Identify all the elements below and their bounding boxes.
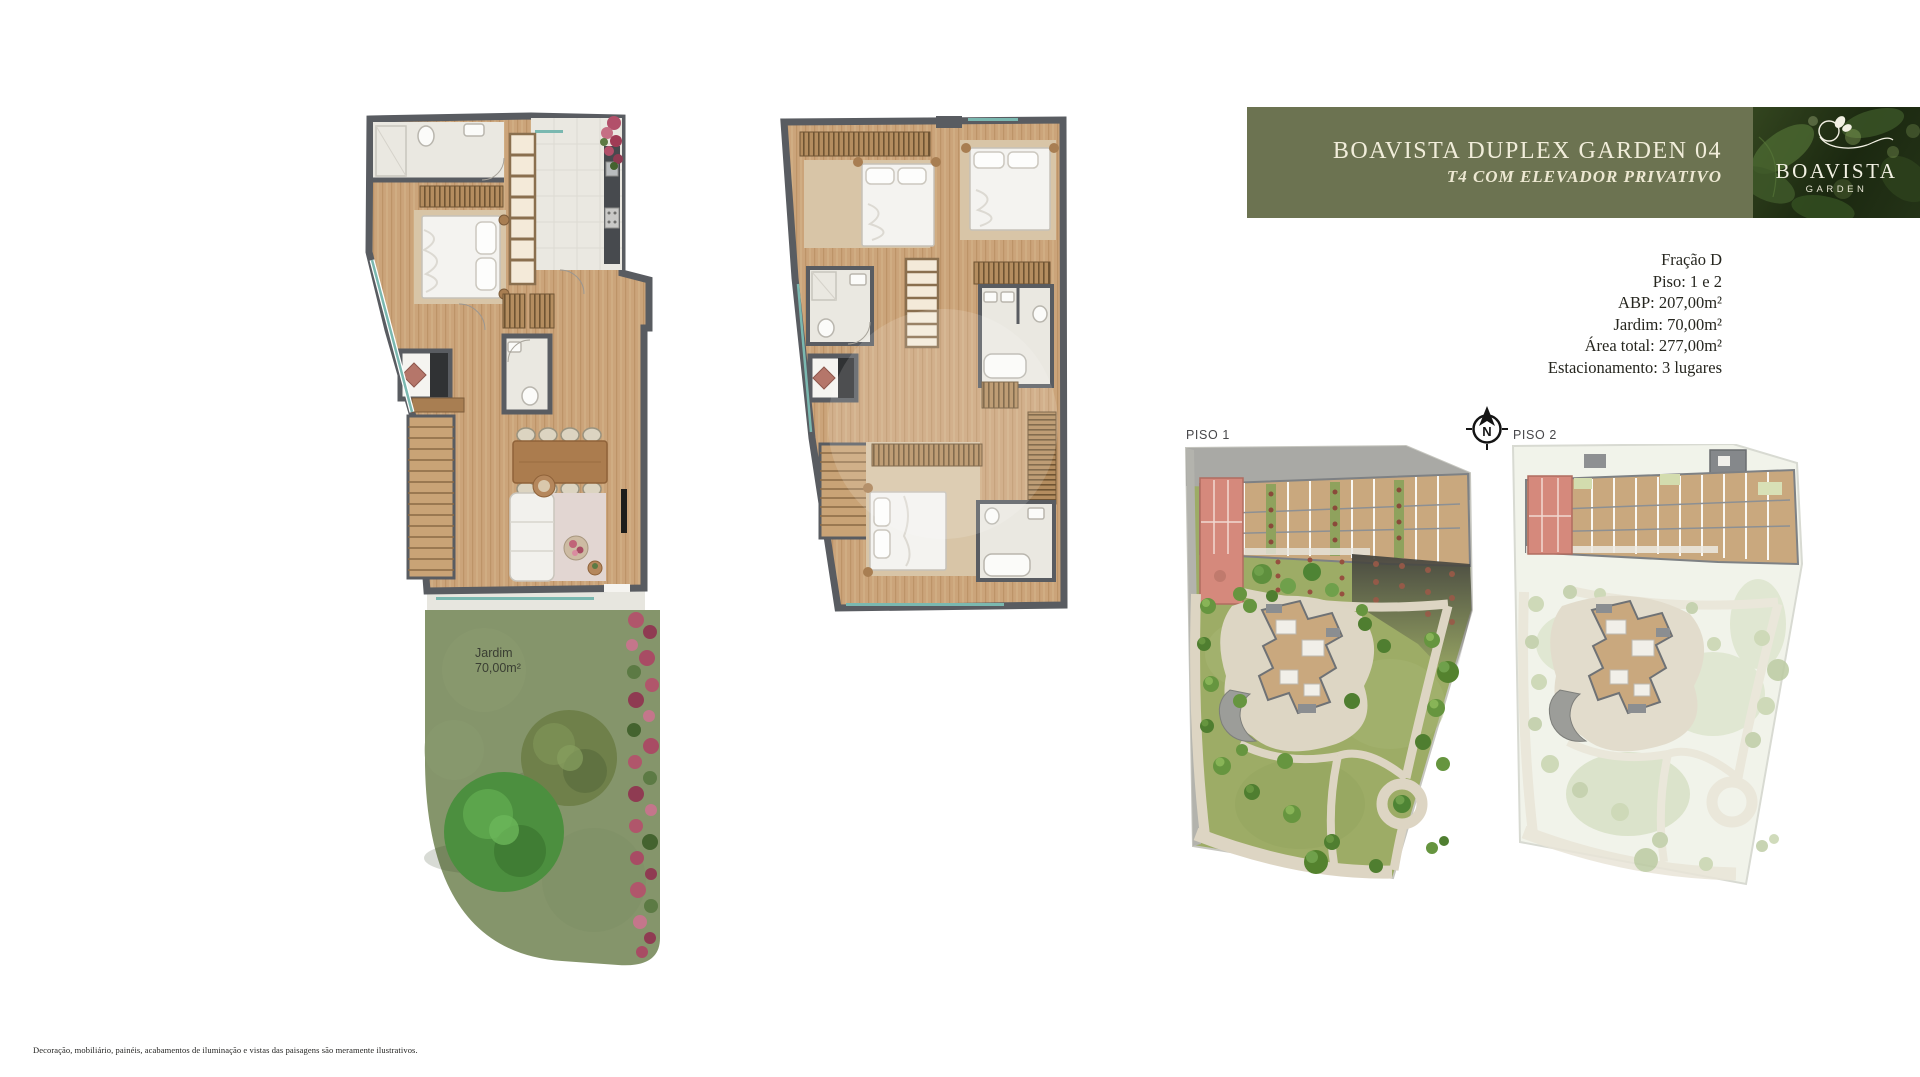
unit-details: Fração D Piso: 1 e 2 ABP: 207,00m² Jardi… <box>1548 249 1722 379</box>
tv-unit <box>621 489 627 533</box>
logo-tagline: GARDEN <box>1753 184 1920 195</box>
siteplan-piso1 <box>1180 444 1474 890</box>
brand-logo: BOAVISTA GARDEN <box>1753 115 1920 195</box>
highlighted-unit-piso1 <box>1200 478 1243 604</box>
closet-shelves <box>510 134 535 284</box>
bathroom-1 <box>808 268 872 344</box>
bedroom-1 <box>800 132 941 248</box>
private-garden <box>424 610 660 965</box>
unit-detail-line: Estacionamento: 3 lugares <box>1548 357 1722 379</box>
garden-label-area: 70,00m² <box>475 661 521 676</box>
stairs <box>408 416 454 578</box>
title-panel: BOAVISTA DUPLEX GARDEN 04 T4 COM ELEVADO… <box>1247 107 1753 218</box>
brochure-page: Jardim 70,00m² <box>0 0 1920 1077</box>
siteplan2-label: PISO 2 <box>1513 428 1557 442</box>
header-banner: BOAVISTA DUPLEX GARDEN 04 T4 COM ELEVADO… <box>1247 107 1920 218</box>
guest-bathroom <box>504 336 550 412</box>
bedroom-2 <box>960 140 1059 284</box>
page-title: BOAVISTA DUPLEX GARDEN 04 <box>1333 138 1722 164</box>
central-building <box>1549 596 1704 752</box>
floor-plan-piso2 <box>778 114 1074 614</box>
disclaimer-text: Decoração, mobiliário, painéis, acabamen… <box>33 1045 418 1055</box>
logo-wordmark: BOAVISTA <box>1753 160 1920 182</box>
logo-leaf-icon <box>1777 115 1897 155</box>
compass-icon: N <box>1464 404 1510 450</box>
brand-photo: BOAVISTA GARDEN <box>1753 107 1920 218</box>
floor-plan-piso1 <box>364 110 664 975</box>
page-subtitle: T4 COM ELEVADOR PRIVATIVO <box>1447 167 1722 187</box>
garden-label-name: Jardim <box>475 646 521 661</box>
unit-detail-line: ABP: 207,00m² <box>1548 292 1722 314</box>
unit-detail-line: Fração D <box>1548 249 1722 271</box>
kitchen <box>531 118 622 294</box>
garden-label: Jardim 70,00m² <box>475 646 521 676</box>
highlighted-unit-piso2 <box>1528 476 1572 554</box>
siteplan1-label: PISO 1 <box>1186 428 1230 442</box>
central-building <box>1219 596 1374 752</box>
siteplan-piso2 <box>1508 444 1808 890</box>
compass-north-label: N <box>1464 424 1510 439</box>
unit-detail-line: Área total: 277,00m² <box>1548 335 1722 357</box>
bathroom-suite <box>373 122 504 180</box>
unit-detail-line: Piso: 1 e 2 <box>1548 271 1722 293</box>
unit-detail-line: Jardim: 70,00m² <box>1548 314 1722 336</box>
